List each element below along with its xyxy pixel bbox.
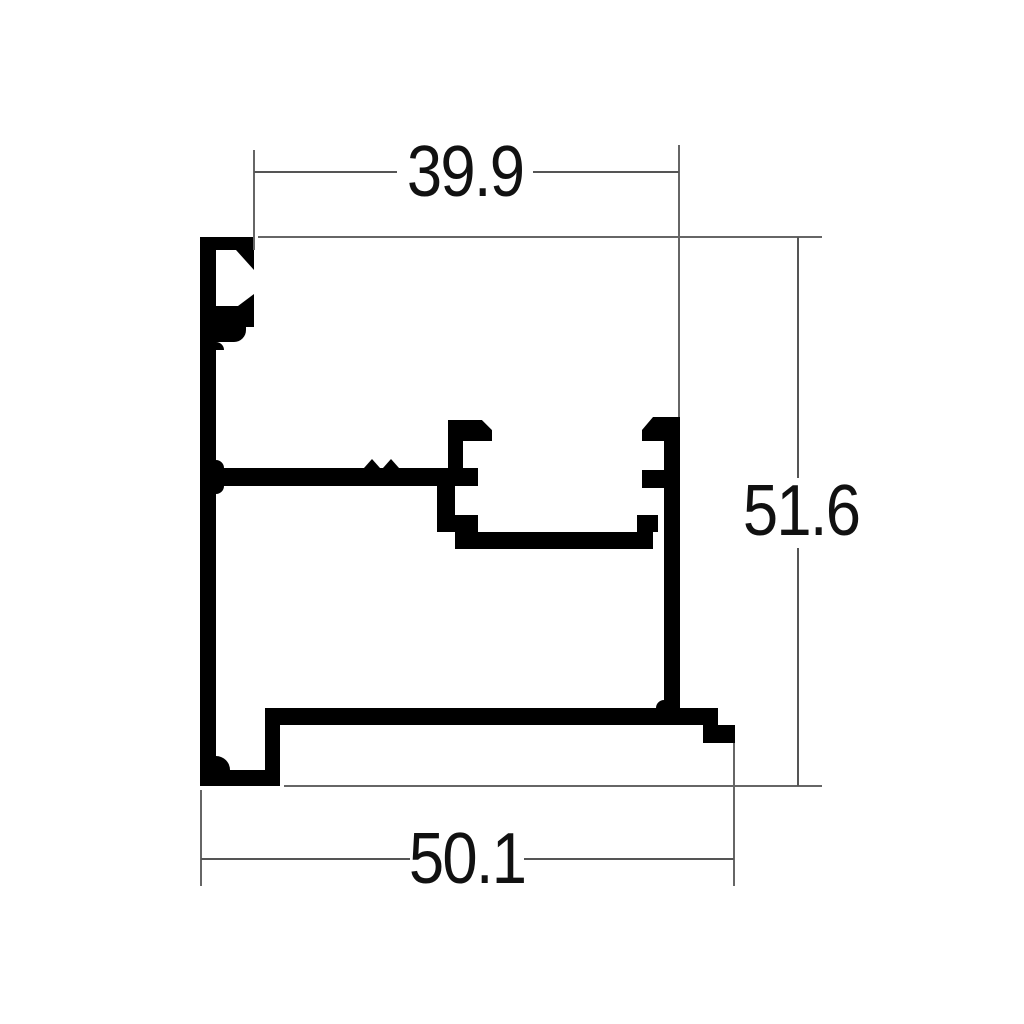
right-height-dimension-label: 51.6 bbox=[733, 475, 869, 547]
profile-drawing-canvas: 39.9 51.6 50.1 bbox=[0, 0, 1024, 1024]
profile-web bbox=[216, 468, 478, 486]
top-width-dimension-label: 39.9 bbox=[397, 136, 533, 208]
profile-right-top-flange bbox=[642, 417, 680, 441]
bottom-width-dimension-value: 50.1 bbox=[409, 818, 525, 900]
profile-top-flange-hook bbox=[236, 250, 254, 270]
fillet-shelf-right-wall bbox=[656, 700, 664, 708]
bottom-width-dimension-label: 50.1 bbox=[410, 823, 524, 895]
fillet-ledge-wall bbox=[216, 342, 224, 350]
right-dim-extension-top bbox=[258, 236, 822, 238]
profile-left-foot bbox=[200, 770, 280, 786]
profile-web-tooth-2 bbox=[383, 459, 399, 468]
bottom-dim-line-right-segment bbox=[524, 858, 734, 860]
top-dim-extension-left bbox=[253, 150, 255, 250]
profile-web-tooth-1 bbox=[364, 459, 380, 468]
profile-tray-plate bbox=[455, 532, 653, 549]
profile-bottom-shelf bbox=[265, 708, 718, 725]
profile-top-flange bbox=[200, 237, 254, 250]
top-dim-line-right-segment bbox=[533, 171, 679, 173]
profile-channel-ledge bbox=[216, 327, 246, 342]
fillet-left-foot bbox=[216, 756, 230, 770]
profile-right-wall bbox=[664, 417, 680, 725]
right-height-dimension-value: 51.6 bbox=[743, 470, 859, 552]
fillet-web-bottom bbox=[216, 486, 224, 494]
bottom-dim-extension-left bbox=[200, 790, 202, 886]
top-width-dimension-value: 39.9 bbox=[407, 131, 523, 213]
right-dim-line-top-segment bbox=[797, 237, 799, 478]
profile-right-foot bbox=[703, 725, 735, 743]
profile-left-wall bbox=[200, 237, 216, 786]
profile-tray-rib-right bbox=[637, 515, 658, 532]
bottom-dim-extension-right bbox=[733, 743, 735, 886]
fillet-web-top bbox=[216, 460, 224, 468]
right-dim-line-bottom-segment bbox=[797, 548, 799, 786]
right-dim-extension-bottom bbox=[284, 785, 822, 787]
profile-center-post-top-flange bbox=[448, 420, 492, 441]
profile-channel-mid-tab bbox=[216, 306, 254, 327]
top-dim-extension-right bbox=[678, 145, 680, 417]
profile-right-mid-tab bbox=[642, 470, 664, 488]
profile-center-bottom-tab-left bbox=[437, 515, 478, 532]
profile-channel-mid-tab-hook bbox=[238, 294, 254, 306]
bottom-dim-line-left-segment bbox=[201, 858, 410, 860]
top-dim-line-left-segment bbox=[254, 171, 397, 173]
